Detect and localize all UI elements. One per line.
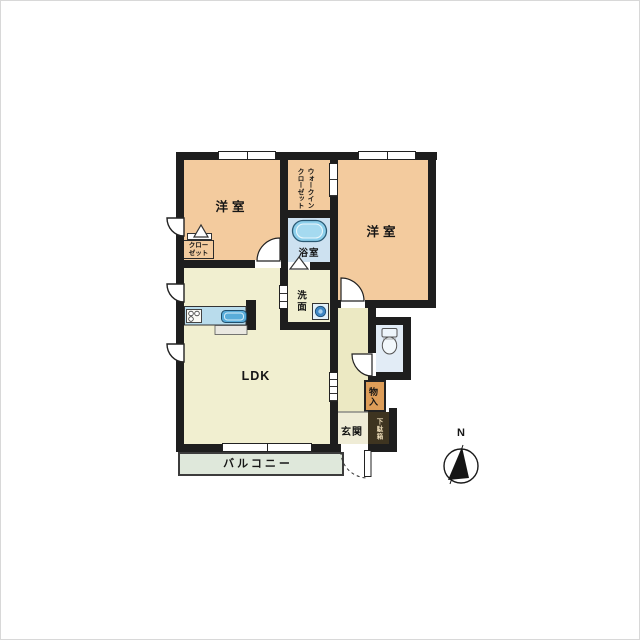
- fixtures-layer: [0, 0, 640, 640]
- label-balcony: バルコニー: [208, 455, 308, 471]
- label-closet-line1: クロー: [183, 242, 214, 250]
- bathtub-icon: [293, 221, 327, 242]
- label-storage: 物入: [369, 384, 380, 410]
- label-closet-line2: ゼット: [183, 250, 214, 258]
- folding-door-icon: [194, 225, 208, 237]
- label-closet: クロー ゼット: [183, 242, 214, 257]
- stove-icon: [187, 310, 202, 323]
- door-swing-icon: [352, 354, 372, 376]
- door-swing-icon: [257, 238, 280, 261]
- door-swing-icon: [341, 278, 364, 301]
- label-walkin-closet-line1: ウォークイン: [304, 164, 314, 212]
- floor-plan: 洋室 洋室 ウォークイン クローゼット 浴室 洗面 クロー ゼット LDK 玄関…: [0, 0, 640, 640]
- label-shoe-cabinet: 下駄箱: [374, 414, 383, 445]
- label-bedroom-right: 洋室: [351, 221, 415, 240]
- bay-window-icon: [167, 218, 184, 362]
- washing-machine-icon: [313, 304, 329, 320]
- entrance-door-icon: [341, 451, 371, 479]
- label-ldk: LDK: [226, 369, 286, 383]
- sink-icon: [222, 311, 247, 323]
- compass-icon: [444, 445, 478, 484]
- counter-island: [215, 326, 247, 335]
- label-entrance: 玄関: [330, 423, 374, 438]
- label-washroom: 洗面: [294, 283, 307, 319]
- label-north: N: [451, 427, 471, 439]
- toilet-icon: [382, 329, 397, 355]
- label-bath: 浴室: [288, 245, 330, 259]
- label-walkin-closet-line2: クローゼット: [294, 164, 304, 212]
- label-bedroom-left: 洋室: [200, 196, 264, 215]
- label-walkin-closet: ウォークイン クローゼット: [292, 164, 314, 212]
